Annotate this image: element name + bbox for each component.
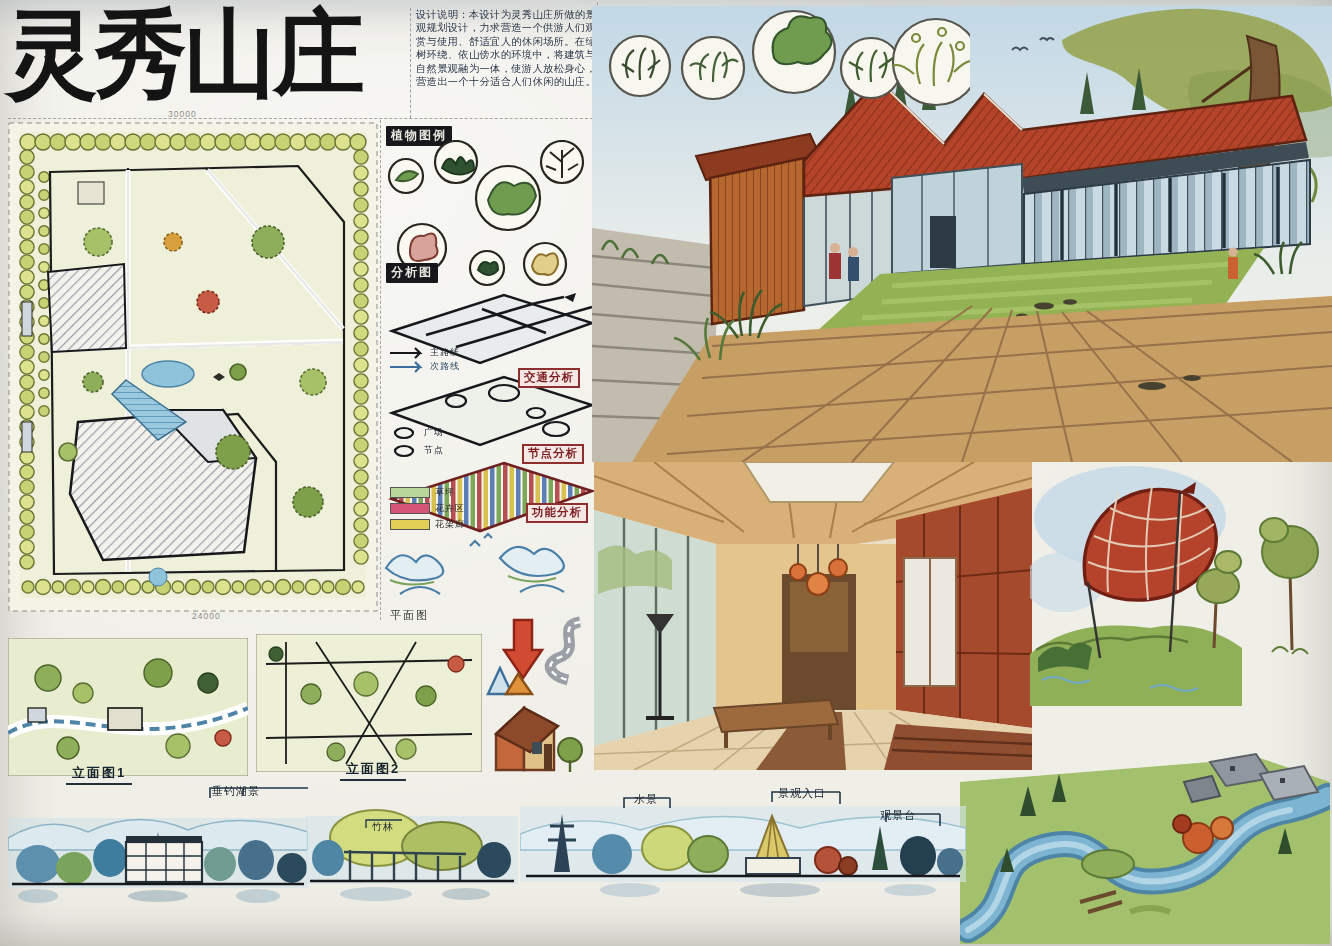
margin-tree-sketch xyxy=(1252,500,1328,660)
traffic-plate xyxy=(390,293,598,372)
plan-dimension-bottom: 24000 xyxy=(192,611,221,621)
elevation-3-callout-platform: 观景台 xyxy=(880,808,916,823)
detail-plan-2 xyxy=(256,634,482,772)
house-sketch-icon xyxy=(488,694,584,776)
analysis-label: 分析图 xyxy=(386,263,438,283)
elevation-3-callout-entrance: 景观入口 xyxy=(778,786,826,801)
master-plan xyxy=(8,122,378,612)
flower-swatch xyxy=(390,503,430,514)
curved-road-icon xyxy=(540,616,592,686)
zone-legend: 草坪 花卉区 花架廊 xyxy=(390,486,500,534)
flower-label: 花卉区 xyxy=(435,502,465,515)
design-notes-text: 设计说明：本设计为灵秀山庄所做的景观规划设计，力求营造一个供游人们观赏与使用、舒… xyxy=(410,8,606,118)
lawn-label: 草坪 xyxy=(435,486,455,499)
elevation-2-drawing xyxy=(306,776,518,908)
elevation-1-callout: 垂钓湖景 xyxy=(212,784,260,799)
plan-label: 平面图 xyxy=(390,608,429,623)
function-analysis-label: 功能分析 xyxy=(526,503,588,523)
detail-plan-1 xyxy=(8,638,248,776)
mountain-sketches xyxy=(380,528,594,606)
route-legend-main: 主路线 xyxy=(430,346,460,359)
plant-symbol-strip xyxy=(598,2,970,114)
interior-perspective xyxy=(594,462,1032,770)
elevation-3-drawing xyxy=(520,774,966,908)
elevation-1-drawing xyxy=(8,780,308,910)
presentation-board: 灵秀山庄 设计说明：本设计为灵秀山庄所做的景观规划设计，力求营造一个供游人们观赏… xyxy=(0,0,1332,946)
pavilion-sketch xyxy=(1030,452,1242,706)
node-legend-plaza: 广场 xyxy=(424,426,444,439)
plan-dimension-top: 30000 xyxy=(168,109,197,119)
lawn-swatch xyxy=(390,487,430,498)
board-title: 灵秀山庄 xyxy=(6,0,410,112)
zone-legend-item: 草坪 xyxy=(390,486,500,499)
zone-legend-item: 花卉区 xyxy=(390,502,500,515)
node-analysis-label: 节点分析 xyxy=(522,444,584,464)
elevation-3-callout-water: 水景 xyxy=(634,792,658,807)
guide-line xyxy=(8,118,598,119)
route-legend-secondary: 次路线 xyxy=(430,360,460,373)
elevation-2-callout: 竹林 xyxy=(372,820,394,834)
triangle-icons xyxy=(486,662,536,698)
birdseye-view xyxy=(960,752,1330,944)
traffic-analysis-label: 交通分析 xyxy=(518,368,580,388)
node-legend-node: 节点 xyxy=(424,444,444,457)
